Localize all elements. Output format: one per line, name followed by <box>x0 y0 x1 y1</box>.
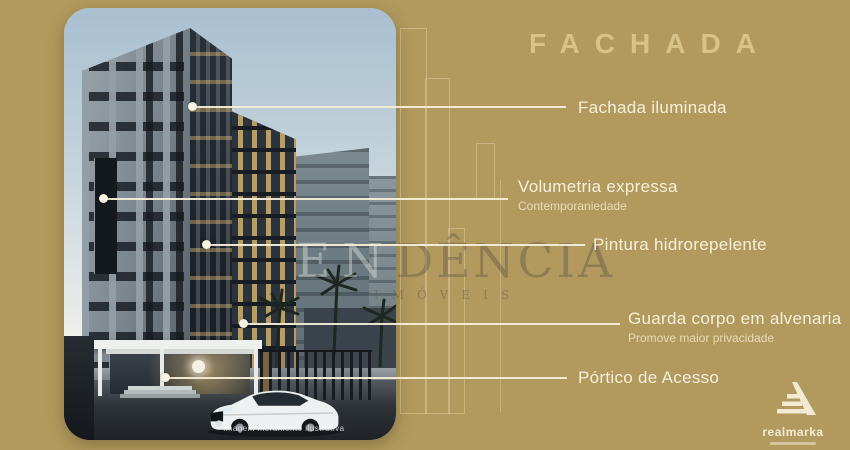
decorative-skyline-bar <box>476 143 495 199</box>
annotation-label: Fachada iluminada <box>578 98 727 118</box>
leader-line-pintura <box>206 244 585 246</box>
annotation-pintura: Pintura hidrorepelente <box>593 235 767 255</box>
annotation-sublabel: Promove maior privacidade <box>628 331 842 345</box>
annotation-label: Volumetria expressa <box>518 177 678 197</box>
annotation-label: Pórtico de Acesso <box>578 368 719 388</box>
decorative-skyline-bar <box>400 28 427 414</box>
watermark-subtext: IMÓVEIS <box>374 288 522 302</box>
logo-tagline-bar <box>770 442 816 445</box>
leader-line-fachada-iluminada <box>193 106 566 108</box>
annotation-fachada-iluminada: Fachada iluminada <box>578 98 727 118</box>
leader-line-guarda-corpo <box>243 323 620 325</box>
annotation-sublabel: Contemporaniedade <box>518 199 678 213</box>
annotation-volumetria: Volumetria expressa Contemporaniedade <box>518 177 678 213</box>
photo-disclaimer: imagem meramente ilustrativa <box>174 424 394 433</box>
leader-dot-portico <box>161 373 170 382</box>
portico-column <box>98 349 102 396</box>
leader-dot-guarda-corpo <box>239 319 248 328</box>
foreground-wall <box>64 336 94 440</box>
portico-lamp <box>192 360 205 373</box>
watermark-text-light: EN <box>296 234 395 289</box>
annotation-portico: Pórtico de Acesso <box>578 368 719 388</box>
leader-dot-pintura <box>202 240 211 249</box>
page-title: FACHADA <box>529 28 771 60</box>
leader-dot-fachada-iluminada <box>188 102 197 111</box>
logo-name: realmarka <box>745 425 841 439</box>
building-render-photo: imagem meramente ilustrativa <box>64 8 396 440</box>
realmarka-logo: realmarka <box>745 382 841 445</box>
marketing-slide: imagem meramente ilustrativa ENDÊNCIA IM… <box>0 0 850 450</box>
facade-dark-fin <box>94 158 117 274</box>
leader-dot-volumetria <box>99 194 108 203</box>
realmarka-logo-icon <box>770 382 816 418</box>
watermark-text-dark: DÊNCIA <box>395 234 615 289</box>
annotation-label: Guarda corpo em alvenaria <box>628 309 842 329</box>
watermark: ENDÊNCIA <box>296 234 615 289</box>
annotation-label: Pintura hidrorepelente <box>593 235 767 255</box>
leader-line-volumetria <box>103 198 508 200</box>
entrance-steps <box>120 394 200 398</box>
portico-roof <box>94 340 262 349</box>
portico-roof-beam <box>106 349 254 354</box>
leader-line-portico <box>165 377 567 379</box>
annotation-guarda-corpo: Guarda corpo em alvenaria Promove maior … <box>628 309 842 345</box>
